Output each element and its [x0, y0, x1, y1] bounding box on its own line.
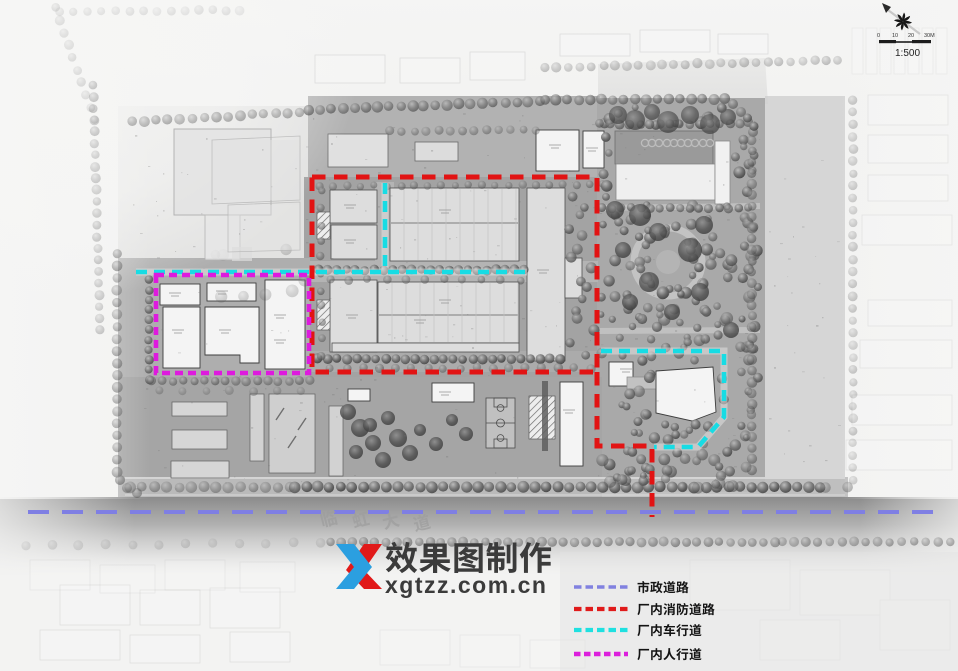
svg-text:10: 10 [892, 33, 898, 39]
svg-text:1:500: 1:500 [895, 48, 920, 59]
svg-text:0: 0 [877, 33, 880, 39]
svg-text:20: 20 [908, 33, 914, 39]
svg-text:xgtzz.com.cn: xgtzz.com.cn [385, 572, 547, 598]
svg-text:30M: 30M [924, 33, 935, 39]
